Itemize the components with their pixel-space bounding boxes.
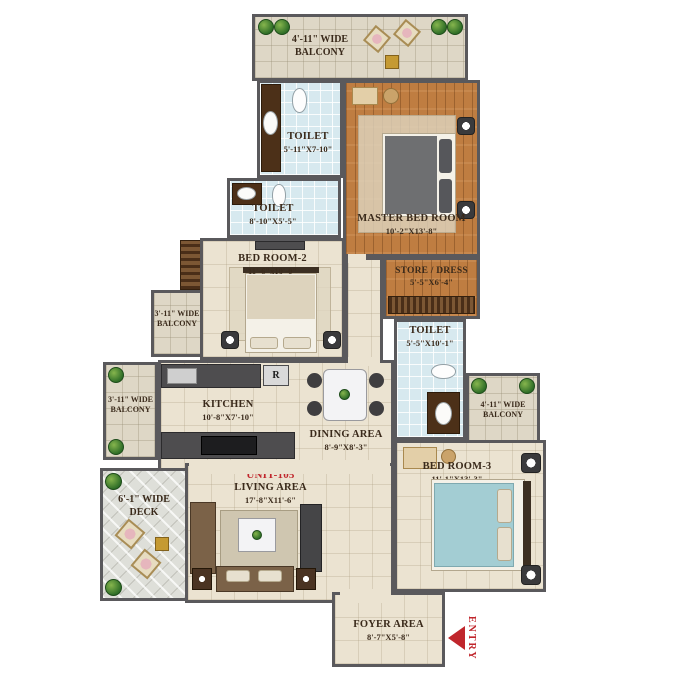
balcony-top-label: 4'-11" WIDE BALCONY: [255, 33, 385, 59]
dining-chair-icon: [369, 373, 384, 388]
deck-chair-icon: [131, 549, 162, 580]
nightstand-lamp-icon: [323, 331, 341, 349]
balcony-top-line1: 4'-11" WIDE: [255, 33, 385, 46]
deck-chair-icon: [115, 519, 146, 550]
dining-chair-icon: [307, 401, 322, 416]
plant-icon: [252, 530, 262, 540]
passage-hall-master: [348, 254, 366, 263]
toilet-2-label: TOILET 8'-10"X5'-5": [230, 203, 316, 227]
living-label: UNIT-105 LIVING AREA 17'-8"X11'-6": [188, 469, 353, 506]
sink-icon: [435, 402, 452, 425]
kitchen-label: KITCHEN 10'-8"X7'-10": [161, 399, 295, 423]
dining-chair-icon: [307, 373, 322, 388]
room-store-dress: STORE / DRESS 5'-5"X6'-4": [383, 257, 480, 319]
room-balcony-right: 4'-11" WIDE BALCONY: [466, 373, 540, 445]
refrigerator-box: R: [263, 365, 289, 386]
kitchen-name: KITCHEN: [161, 399, 295, 412]
master-bedroom-name: MASTER BED ROOM: [346, 213, 477, 226]
room-deck: 6'-1" WIDE DECK: [100, 468, 188, 601]
store-dress-label: STORE / DRESS 5'-5"X6'-4": [386, 266, 477, 289]
wardrobe-icon: [388, 296, 475, 314]
store-dress-dims: 5'-5"X6'-4": [386, 277, 477, 288]
toilet-2-name: TOILET: [230, 203, 316, 216]
balcony-right-line2: BALCONY: [469, 410, 537, 420]
store-dress-name: STORE / DRESS: [386, 266, 477, 277]
floor-plan: 4'-11" WIDE BALCONY TOILET 5'-11"X7-10" …: [0, 0, 700, 675]
bedroom-2-label: BED ROOM-2 11'-6"x10'-0": [203, 253, 342, 277]
dining-name: DINING AREA: [301, 429, 391, 442]
room-foyer: FOYER AREA 8'-7"X5'-8": [332, 592, 445, 667]
bedroom-2-dims: 11'-6"x10'-0": [203, 266, 342, 277]
master-bedroom-label: MASTER BED ROOM 10'-2"X13'-8": [346, 213, 477, 237]
balcony-chair-icon: [393, 19, 421, 47]
toilet-1-name: TOILET: [276, 131, 340, 144]
bedroom-2-name: BED ROOM-2: [203, 253, 342, 266]
foyer-name: FOYER AREA: [335, 619, 442, 632]
cushion: [258, 570, 282, 582]
dining-label: DINING AREA 8'-9"X8'-3": [301, 429, 391, 453]
plant-icon: [105, 579, 122, 596]
speaker-icon: [192, 568, 212, 590]
plant-icon: [431, 19, 447, 35]
blanket: [247, 275, 315, 319]
plant-icon: [471, 378, 487, 394]
foyer-dims: 8'-7"X5'-8": [335, 632, 442, 643]
sofa-icon: [190, 502, 216, 574]
plant-icon: [108, 367, 124, 383]
balcony-left-upper-line2: BALCONY: [154, 319, 200, 329]
deck-line2: DECK: [103, 506, 185, 519]
deck-line1: 6'-1" WIDE: [103, 493, 185, 506]
nightstand-lamp-icon: [457, 117, 475, 135]
stove-icon: [201, 436, 257, 455]
balcony-left-upper-label: 3'-11" WIDE BALCONY: [154, 309, 200, 330]
balcony-table-icon: [385, 55, 399, 69]
toilet-1-label: TOILET 5'-11"X7-10": [276, 131, 340, 155]
room-toilet-2: TOILET 8'-10"X5'-5": [227, 178, 341, 238]
plant-icon: [447, 19, 463, 35]
balcony-top-line2: BALCONY: [255, 46, 385, 59]
headboard: [523, 481, 531, 569]
passage-living-dining: [189, 460, 390, 474]
wc-icon: [292, 88, 307, 113]
balcony-right-line1: 4'-11" WIDE: [469, 400, 537, 410]
console-icon: [255, 241, 305, 250]
room-toilet-3: TOILET 5'-5"X10'-1": [394, 319, 466, 440]
mattress: [385, 136, 437, 214]
room-balcony-top: 4'-11" WIDE BALCONY: [252, 14, 468, 81]
deck-table-icon: [155, 537, 169, 551]
room-balcony-left-lower: 3'-11" WIDE BALCONY: [103, 362, 158, 460]
plant-icon: [105, 473, 122, 490]
room-kitchen-dining: R KITCHEN 10'-8"X7'-10" DINING AREA 8'-9…: [158, 360, 394, 475]
foyer-label: FOYER AREA 8'-7"X5'-8": [335, 619, 442, 643]
pillow: [497, 489, 512, 523]
toilet-1-dims: 5'-11"X7-10": [276, 144, 340, 155]
plant-icon: [108, 439, 124, 455]
balcony-left-lower-line2: BALCONY: [106, 405, 155, 415]
tv-unit-icon: [300, 504, 322, 572]
speaker-icon: [296, 568, 316, 590]
pillow: [283, 337, 311, 349]
toilet-3-name: TOILET: [397, 325, 463, 338]
master-bedroom-dims: 10'-2"X13'-8": [346, 226, 477, 237]
toilet-3-label: TOILET 5'-5"X10'-1": [397, 325, 463, 349]
entry-label: ENTRY: [466, 616, 477, 670]
room-bedroom-3: BED ROOM-3 11'-1"X13'-3": [394, 440, 546, 592]
sink-icon: [237, 187, 256, 200]
entry-arrow-icon: [448, 626, 465, 650]
living-name: LIVING AREA: [188, 482, 353, 495]
room-living: UNIT-105 LIVING AREA 17'-8"X11'-6": [185, 463, 394, 603]
toilet-3-dims: 5'-5"X10'-1": [397, 338, 463, 349]
pillow: [439, 139, 452, 173]
plant-icon: [339, 389, 350, 400]
balcony-left-upper-line1: 3'-11" WIDE: [154, 309, 200, 319]
room-master-bedroom: MASTER BED ROOM 10'-2"X13'-8": [343, 80, 480, 257]
balcony-right-label: 4'-11" WIDE BALCONY: [469, 400, 537, 421]
nightstand-lamp-icon: [521, 453, 541, 473]
room-balcony-left-upper: 3'-11" WIDE BALCONY: [151, 290, 203, 357]
pillow: [250, 337, 278, 349]
bedroom-3-name: BED ROOM-3: [397, 461, 517, 474]
kitchen-dims: 10'-8"X7'-10": [161, 412, 295, 423]
hallway: [345, 257, 383, 363]
balcony-left-lower-label: 3'-11" WIDE BALCONY: [106, 395, 155, 416]
cushion: [226, 570, 250, 582]
deck-label: 6'-1" WIDE DECK: [103, 493, 185, 519]
pillow: [497, 527, 512, 561]
pillow: [439, 179, 452, 213]
room-toilet-1: TOILET 5'-11"X7-10": [257, 80, 343, 178]
stool-icon: [383, 88, 399, 104]
nightstand-lamp-icon: [521, 565, 541, 585]
balcony-left-lower-line1: 3'-11" WIDE: [106, 395, 155, 405]
plant-icon: [519, 378, 535, 394]
toilet-2-dims: 8'-10"X5'-5": [230, 216, 316, 227]
passage-hall-dining: [348, 357, 380, 366]
dining-chair-icon: [369, 401, 384, 416]
vanity-icon: [352, 87, 378, 105]
nightstand-lamp-icon: [221, 331, 239, 349]
room-bedroom-2: BED ROOM-2 11'-6"x10'-0": [200, 238, 345, 360]
wc-icon: [431, 364, 456, 379]
sink-icon: [167, 368, 197, 384]
dining-dims: 8'-9"X8'-3": [301, 442, 391, 453]
passage-foyer: [340, 589, 391, 603]
